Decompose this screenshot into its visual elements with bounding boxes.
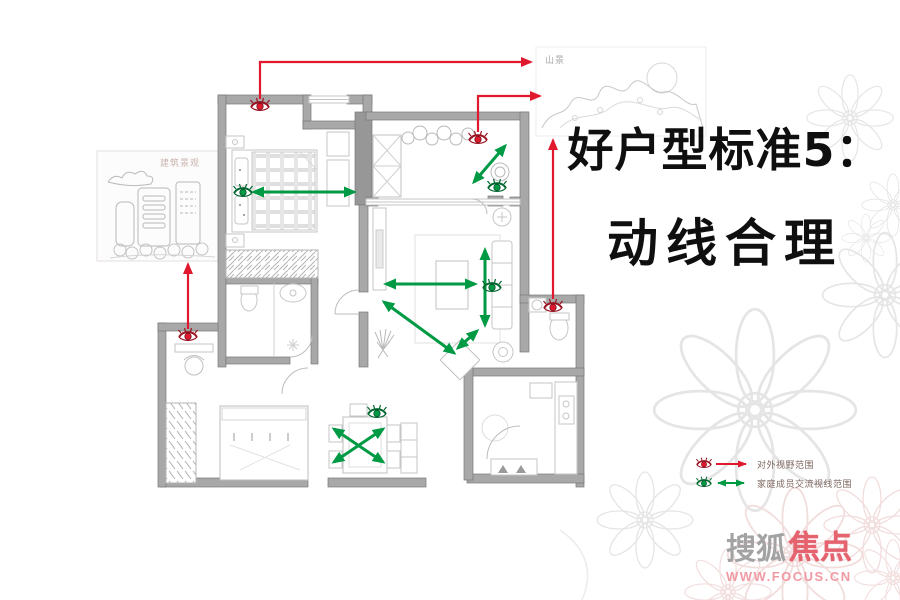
closet [327,132,349,156]
furniture [175,126,577,480]
nightstand [226,136,244,148]
green-eye-icon [368,405,387,417]
mountain-sketch-label: 山景 [545,53,565,66]
bathroom-sink [529,298,546,312]
toilet [241,286,258,311]
page-title-line-2: 动线合理 [558,202,892,276]
office-chair [184,356,204,376]
external-view-arrow [260,62,531,99]
wardrobe [226,250,318,278]
desk [175,344,213,352]
stove [491,459,537,475]
apartment-floor-plan [158,62,584,487]
toilet [550,313,569,340]
sightline-arrow [384,302,454,353]
bookshelf [166,403,196,483]
tv [376,230,383,268]
infographic-page: 好户型标准5： 动线合理 建筑景观 山景 对外视野范围 家庭成员交流视线范围 搜… [0,0,900,600]
sightline-arrow [458,331,477,348]
dining-cabinet [401,423,417,473]
green-eye-icon [694,475,752,491]
balcony-plants [402,126,509,181]
floor-plan-graphic [0,0,900,600]
bathroom-sink [280,284,306,302]
second-bed [220,406,308,480]
watermark-brand-red: 焦点 [788,522,852,568]
legend-label: 对外视野范围 [757,458,814,471]
desk-unit [327,160,349,206]
watermark-url: WWW.FOCUS.CN [726,569,886,584]
red-eye-icon [694,456,752,472]
red-eye-icon [469,131,488,143]
nightstand [226,234,244,247]
legend: 对外视野范围 家庭成员交流视线范围 [694,456,852,491]
legend-label: 家庭成员交流视线范围 [757,477,852,490]
building-sketch-label: 建筑景观 [160,156,200,169]
armchair [493,342,513,362]
floor-plant [375,329,394,358]
ceiling-light [287,339,299,351]
dining-table [329,404,400,473]
legend-item-external-view: 对外视野范围 [694,456,852,472]
legend-item-family-sightline: 家庭成员交流视线范围 [694,475,852,491]
watermark-brand-gray: 搜狐 [726,524,786,568]
page-title-line-1: 好户型标准5： [558,114,892,180]
sofa [492,241,512,329]
watermark: 搜狐 焦点 WWW.FOCUS.CN [726,522,886,584]
balcony-cabinet [373,135,401,197]
